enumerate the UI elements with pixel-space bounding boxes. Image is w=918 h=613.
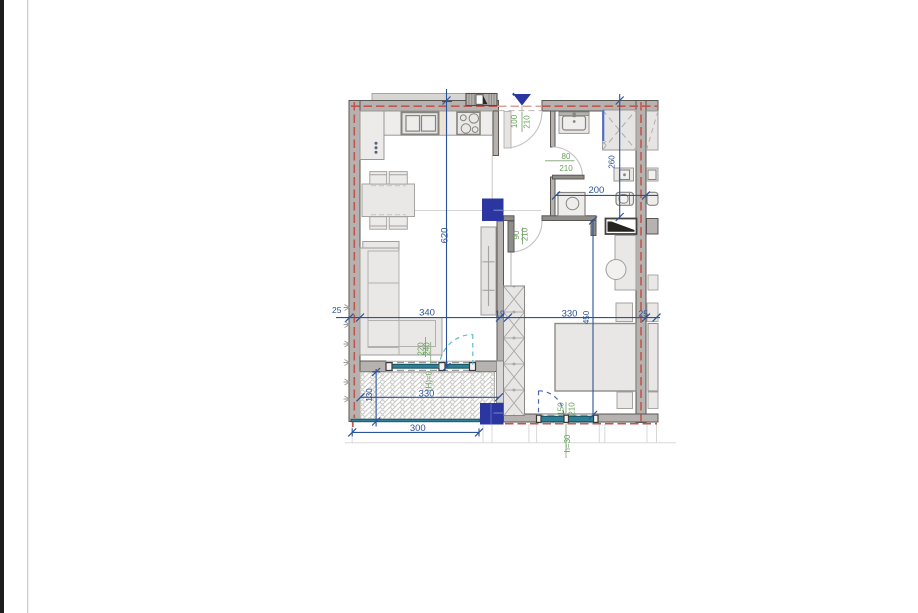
svg-text:210: 210 <box>559 164 573 173</box>
svg-text:450: 450 <box>582 310 591 324</box>
svg-text:25: 25 <box>639 309 649 319</box>
svg-text:200: 200 <box>588 185 604 196</box>
svg-text:620: 620 <box>440 228 451 244</box>
svg-text:150: 150 <box>557 402 566 416</box>
svg-text:19: 19 <box>495 308 505 318</box>
svg-text:25: 25 <box>332 305 342 315</box>
svg-text:210: 210 <box>568 402 577 416</box>
svg-text:(H)=0: (H)=0 <box>425 370 434 391</box>
svg-text:210: 210 <box>521 227 530 241</box>
svg-text:100: 100 <box>510 114 519 128</box>
svg-text:130: 130 <box>365 388 374 402</box>
svg-text:330: 330 <box>562 309 578 320</box>
svg-text:340: 340 <box>419 308 435 319</box>
svg-text:210: 210 <box>523 115 532 129</box>
svg-text:h=30: h=30 <box>563 434 572 453</box>
svg-text:80: 80 <box>562 152 571 161</box>
svg-text:260: 260 <box>608 155 617 169</box>
svg-text:300: 300 <box>410 423 426 434</box>
svg-text:240: 240 <box>423 342 432 356</box>
